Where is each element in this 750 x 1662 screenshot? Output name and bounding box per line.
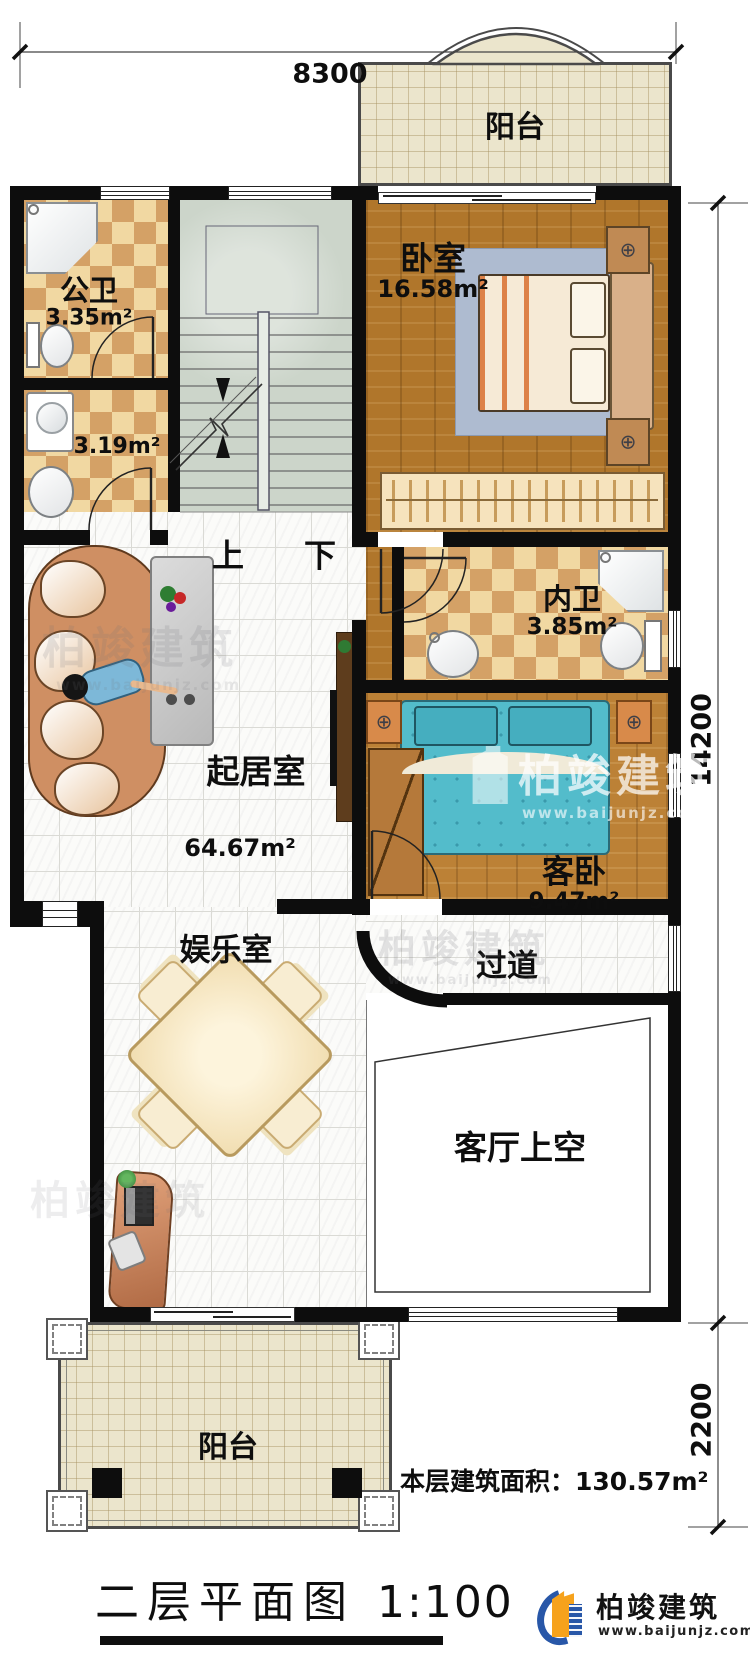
flower-decor-icon — [166, 602, 176, 612]
wall — [295, 1307, 408, 1322]
wall — [352, 620, 366, 905]
floor-plan-canvas: 柏竣建筑 www.baijunjz.com 柏竣建筑 www.baijunjz.… — [0, 0, 750, 1662]
plant-icon — [338, 640, 351, 653]
wall — [618, 1307, 681, 1322]
stairs-down-text: 下 — [304, 537, 336, 575]
guest-pillow-1 — [414, 706, 498, 746]
nightstand-icon — [606, 418, 650, 466]
wall — [150, 530, 168, 545]
title-text: 二层平面图 — [95, 1577, 355, 1628]
corridor-name: 过道 — [476, 948, 538, 984]
wall — [668, 992, 681, 1322]
balcony-arch-outer — [427, 28, 605, 64]
drawing-title: 二层平面图1:100 — [95, 1566, 514, 1630]
laundry-area: 3.19m² — [74, 434, 161, 459]
dimension-right-lower: 2200 — [687, 1382, 716, 1457]
public-bath-name: 公卫 — [60, 273, 118, 307]
logo-building-blue-icon — [569, 1604, 582, 1637]
room-label-corridor: 过道 — [476, 950, 538, 983]
person-head — [62, 674, 88, 700]
wall — [24, 530, 90, 545]
room-label-bedroom: 卧室 16.58m² — [377, 241, 488, 303]
logo-name: 柏竣建筑 — [596, 1586, 720, 1626]
room-label-inner-bath: 内卫 3.85m² — [527, 584, 618, 640]
toilet-icon — [26, 322, 40, 368]
room-label-living-void: 客厅上空 — [454, 1130, 586, 1166]
window — [408, 1307, 618, 1322]
stairs-up-text: 上 — [212, 537, 244, 575]
living-area: 64.67m² — [184, 834, 295, 862]
dimension-top-value: 8300 — [292, 58, 367, 89]
room-label-entertainment: 娱乐室 — [180, 934, 273, 967]
wall — [443, 993, 668, 1005]
guest-bedroom-name: 客卧 — [542, 852, 606, 890]
bedroom-headboard — [610, 262, 654, 430]
plant-icon — [118, 1170, 136, 1188]
laundry-sink-icon — [28, 466, 74, 518]
room-label-laundry: 3.19m² — [74, 435, 161, 459]
wardrobe-rod-icon — [386, 499, 658, 501]
balcony-bottom-name: 阳台 — [198, 1430, 258, 1465]
living-void-name: 客厅上空 — [454, 1128, 586, 1167]
table-knob-icon — [166, 694, 177, 705]
window — [100, 186, 170, 200]
balcony-top-name: 阳台 — [485, 110, 545, 145]
computer-monitor-icon — [124, 1186, 154, 1226]
guest-bedroom-area: 9.47m² — [529, 889, 620, 914]
sliding-door — [150, 1307, 295, 1322]
nightstand-icon — [616, 700, 652, 744]
logo-url: www.baijunjz.com — [598, 1624, 750, 1639]
toilet-tank-icon — [644, 620, 662, 672]
wall — [352, 680, 681, 693]
bedroom-pillow-1 — [570, 282, 606, 338]
pillar — [46, 1490, 88, 1532]
window — [668, 610, 681, 668]
bedroom-area: 16.58m² — [377, 277, 488, 303]
title-underline — [100, 1636, 443, 1645]
sofa-cushion — [40, 700, 104, 760]
stairwell-floor — [180, 200, 352, 512]
pillar-solid — [92, 1468, 122, 1498]
washing-machine-door-icon — [36, 402, 68, 434]
wall — [90, 901, 104, 1322]
room-label-public-bath: 公卫 3.35m² — [46, 275, 133, 330]
sliding-door — [378, 192, 596, 204]
tv-cabinet — [336, 632, 353, 822]
entertainment-name: 娱乐室 — [180, 932, 273, 968]
hall-nook-floor — [366, 547, 392, 680]
floor-area-label: 本层建筑面积： — [400, 1467, 575, 1496]
title-scale: 1:100 — [377, 1577, 514, 1628]
tv-icon — [330, 690, 337, 786]
sofa-cushion — [40, 560, 106, 618]
pillar-solid — [332, 1468, 362, 1498]
room-label-balcony-top: 阳台 — [485, 112, 545, 144]
window — [668, 753, 681, 818]
table-knob-icon — [184, 694, 195, 705]
living-name: 起居室 — [207, 752, 306, 791]
dimension-right-main: 14200 — [687, 693, 716, 787]
window — [42, 901, 78, 927]
inner-bath-area: 3.85m² — [527, 615, 618, 640]
dimension-right-lower-value: 2200 — [686, 1382, 717, 1457]
wall — [332, 186, 378, 200]
pillar — [358, 1490, 400, 1532]
wardrobe-hangers-icon — [392, 480, 654, 522]
room-label-guest-bedroom: 客卧 9.47m² — [529, 854, 620, 913]
window — [668, 925, 681, 992]
wall — [10, 901, 42, 927]
room-label-living: 起居室 — [207, 754, 306, 790]
flower-decor-icon — [174, 592, 186, 604]
wall — [277, 899, 366, 914]
floor-area-value: 130.57m² — [575, 1467, 708, 1496]
bathroom-sink-icon — [427, 630, 479, 678]
wall — [352, 200, 366, 532]
public-bath-area: 3.35m² — [46, 307, 133, 331]
wall — [443, 532, 681, 547]
pillar — [358, 1318, 400, 1360]
wall — [168, 200, 180, 512]
room-label-living-area: 64.67m² — [184, 836, 295, 862]
coffee-table — [150, 556, 214, 746]
wall — [24, 378, 168, 390]
balcony-arch — [436, 34, 596, 64]
dimension-top: 8300 — [292, 59, 367, 88]
stairs-up-label: 上 — [212, 539, 244, 574]
wall — [90, 1307, 150, 1322]
toilet-bowl-icon — [40, 324, 74, 368]
dimension-right-main-value: 14200 — [686, 693, 717, 787]
nightstand-icon — [606, 226, 650, 274]
company-logo: 柏竣建筑 www.baijunjz.com — [538, 1586, 743, 1652]
bedroom-pillow-2 — [570, 348, 606, 404]
wall — [392, 547, 404, 680]
window — [228, 186, 332, 200]
stairs-down-label: 下 — [304, 539, 336, 574]
pillar — [46, 1318, 88, 1360]
floor-area-note: 本层建筑面积：130.57m² — [400, 1462, 709, 1498]
nightstand-icon — [366, 700, 402, 744]
inner-bath-name: 内卫 — [543, 582, 601, 616]
wall — [10, 186, 24, 915]
wall — [170, 186, 228, 200]
room-label-balcony-bottom: 阳台 — [198, 1432, 258, 1464]
guest-pillow-2 — [508, 706, 592, 746]
wall — [352, 532, 378, 547]
bedroom-name: 卧室 — [400, 239, 466, 278]
